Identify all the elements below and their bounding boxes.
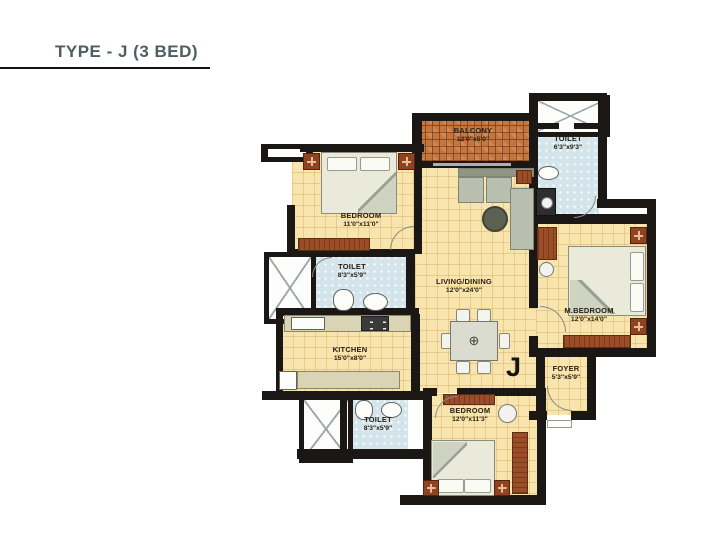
bed-pillow [630,252,644,281]
wall [574,123,602,129]
refrigerator [279,371,297,390]
bed-pillow [464,479,491,493]
unit-marker: J [506,352,521,383]
bedroom1-label: BEDROOM 11'0"x11'0" [341,211,382,228]
washbasin-round [498,404,517,423]
wall [406,252,415,316]
nightstand [423,480,439,496]
entrance-step [547,420,572,428]
dining-table: ⊕ [450,321,498,361]
toilet-wc [333,289,354,311]
sofa-chaise [510,188,534,250]
dining-chair [456,361,470,374]
wall [300,144,424,152]
wall [598,93,607,208]
bed-pillow [327,157,357,171]
wall [412,113,538,121]
wall [411,314,420,396]
bed-pillow [360,157,390,171]
washbasin [363,293,388,311]
nightstand [630,318,647,335]
toilet-top-label: TOILET 6'3"x9'3" [554,134,583,151]
nightstand [303,153,320,170]
toilet-mid-label: TOILET 8'3"x5'9" [338,262,367,279]
balcony-label: BALCONY 12'0"x5'0" [454,126,492,143]
wall [587,348,596,420]
bed-pillow [630,283,644,312]
dresser [537,227,557,260]
wall [414,166,422,254]
bed-pillow [437,479,464,493]
bedroom2-label: BEDROOM 12'0"x11'3" [450,406,491,423]
wall [297,449,427,459]
wall [529,93,607,101]
kitchen-counter-bottom [297,371,400,389]
toilet-bottom-label: TOILET 8'3"x5'9" [364,415,393,432]
wardrobe [512,432,528,494]
kitchen-sink [291,317,325,330]
wardrobe [298,238,370,251]
kitchen-label: KITCHEN 15'0"x8'0" [333,345,368,362]
floor-plan: ⊕ BEDROOM 11'0"x11'0" BALCONY 12'0"x5'0"… [0,0,720,540]
sofa-seat [458,177,484,203]
wall [529,411,547,420]
balcony-window [433,163,511,166]
side-cabinet [516,170,532,184]
living-label: LIVING/DINING 12'0"x24'0" [436,277,492,294]
wall [571,411,596,420]
wall [400,495,546,505]
wall [533,123,559,129]
sofa-seat [486,177,512,203]
page: { "header": { "title": "TYPE - J (3 BED)… [0,0,720,540]
wardrobe [563,335,631,348]
nightstand [398,153,415,170]
dining-chair [477,361,491,374]
vanity-basin [541,197,553,209]
nightstand [630,227,647,244]
mbedroom-label: M.BEDROOM 12'0"x14'0" [564,306,613,323]
nightstand [494,480,510,496]
toilet-wc [538,166,559,180]
dining-chair [499,333,510,349]
kitchen-hob [361,316,389,331]
coffee-table [482,206,508,232]
foyer-label: FOYER 5'3"x5'9" [552,364,581,381]
bed-blanket-fold [433,442,467,478]
bed-blanket-fold [358,172,396,213]
stool [539,262,554,277]
wall [340,397,347,455]
